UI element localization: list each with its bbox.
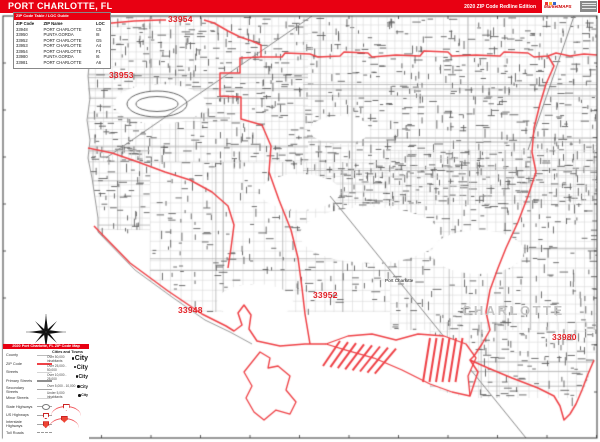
zip-label-33953: 33953 xyxy=(109,70,134,80)
legend-item-us-hwy: US Highways xyxy=(6,411,52,420)
legend-item-interstate: Interstate Highways xyxy=(6,420,52,429)
city-size-row: Over 5,000 - 10,000City xyxy=(47,382,88,391)
city-size-row: Over 50,000 inhabitantsCity xyxy=(47,354,88,363)
zip-table-header-row: ZIP Code ZIP Name LOC xyxy=(14,21,110,27)
cities-and-towns-legend: Cities and Towns Over 50,000 inhabitants… xyxy=(47,350,88,400)
zip-name: PORT CHARLOTTE xyxy=(42,60,94,66)
zip-table-title: ZIP Code Table / LOC Guide xyxy=(14,13,110,20)
zip-label-33980: 33980 xyxy=(552,332,577,342)
edition-label: 2020 ZIP Code Redline Edition xyxy=(464,4,536,10)
legend-item-secondary: Secondary Streets xyxy=(6,385,52,394)
county-name-label: CHARLOTTE xyxy=(462,303,565,318)
logo-fineprint-box xyxy=(580,1,597,12)
legend-item-toll: Toll Roads xyxy=(6,428,52,437)
zip-code: 33981 xyxy=(14,60,42,66)
toll-line-symbol xyxy=(37,432,52,433)
marketmaps-logo: MarketMAPS xyxy=(542,0,598,13)
legend-item-county: County xyxy=(6,351,52,360)
legend-item-minor: Minor Streets xyxy=(6,394,52,403)
legend-item-streets: Streets xyxy=(6,368,52,377)
legend-item-primary: Primary Streets xyxy=(6,377,52,386)
legend-item-zip: ZIP Code xyxy=(6,360,52,369)
interstate-arc-sample xyxy=(49,418,79,428)
cities-header: Cities and Towns xyxy=(47,350,88,354)
zip-loc: A6 xyxy=(94,60,110,66)
zip-label-33952: 33952 xyxy=(313,290,338,300)
zip-code-table: ZIP Code Table / LOC Guide ZIP Code ZIP … xyxy=(13,12,111,69)
state-highway-symbol xyxy=(37,406,52,407)
table-row: 33981PORT CHARLOTTEA6 xyxy=(14,60,110,66)
logo-brand-text: MarketMAPS xyxy=(544,4,572,9)
zip-label-33948: 33948 xyxy=(178,305,203,315)
zip-label-33954: 33954 xyxy=(168,14,193,24)
city-size-row: Under 5,000 inhabitantsCity xyxy=(47,391,88,400)
city-size-row: Over 10,000 - 25,000City xyxy=(47,372,88,381)
map-page: 33954 33953 33948 33952 33980 Port Charl… xyxy=(0,0,600,442)
map-legend: 2020 Port Charlotte, FL ZIP Code Map Cou… xyxy=(3,344,89,441)
legend-item-state-hwy: State Highways xyxy=(6,403,52,412)
place-label-port-charlotte: Port Charlotte xyxy=(385,278,413,283)
city-size-row: Over 25,000 - 50,000City xyxy=(47,363,88,372)
page-title: PORT CHARLOTTE, FL xyxy=(8,1,112,11)
us-highway-shield-icon xyxy=(37,415,52,416)
us-highway-arc-sample xyxy=(51,406,81,416)
